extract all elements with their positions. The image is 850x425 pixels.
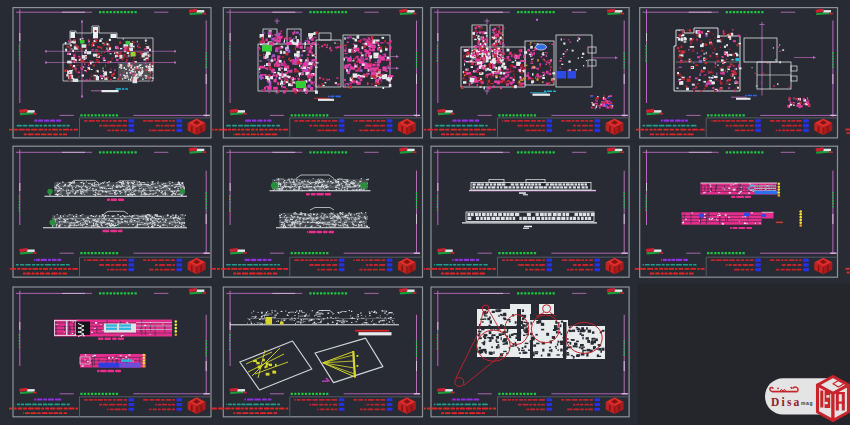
svg-text:mag: mag (801, 400, 813, 406)
svg-text:Disa: Disa (771, 396, 802, 408)
